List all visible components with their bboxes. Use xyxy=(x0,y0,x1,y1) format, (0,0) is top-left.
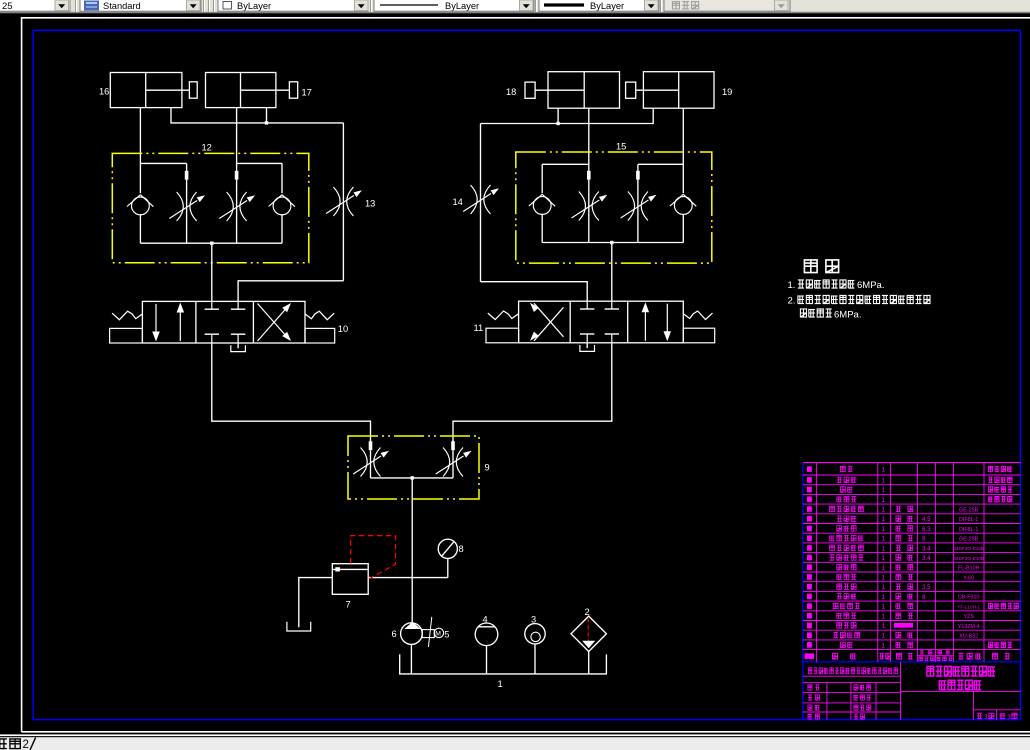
svg-text:M: M xyxy=(435,631,441,638)
svg-text:1: 1 xyxy=(882,555,886,562)
svg-text:1.: 1. xyxy=(788,280,796,291)
svg-text:1: 1 xyxy=(498,679,503,689)
svg-text:1: 1 xyxy=(882,565,886,572)
svg-text:1: 1 xyxy=(882,507,886,514)
svg-text:1: 1 xyxy=(882,467,886,474)
svg-text:1: 1 xyxy=(882,604,886,611)
svg-text:1: 1 xyxy=(882,584,886,591)
svg-text:1: 1 xyxy=(882,613,886,620)
svg-text:13: 13 xyxy=(365,199,375,209)
svg-text:1: 1 xyxy=(882,633,886,640)
svg-text:FL-B10H: FL-B10H xyxy=(958,566,980,572)
svg-text:3: 3 xyxy=(531,615,536,625)
svg-text:1: 1 xyxy=(882,594,886,601)
svg-text:16: 16 xyxy=(99,87,109,97)
svg-text:9: 9 xyxy=(485,463,490,473)
svg-text:34DF3O-E10B: 34DF3O-E10B xyxy=(953,546,984,551)
svg-text:2: 2 xyxy=(585,607,590,617)
svg-text:GE-25B: GE-25B xyxy=(959,507,979,513)
svg-text:ByLayer: ByLayer xyxy=(237,1,271,11)
svg-text:XU-B32: XU-B32 xyxy=(959,634,978,640)
svg-text:11: 11 xyxy=(474,323,484,333)
svg-text:1: 1 xyxy=(882,623,886,630)
svg-text:2: 2 xyxy=(23,739,29,750)
svg-text:3.4: 3.4 xyxy=(922,555,931,562)
svg-text:6.3: 6.3 xyxy=(922,526,931,533)
svg-text:Standard: Standard xyxy=(103,1,141,11)
svg-text:14: 14 xyxy=(453,197,463,207)
svg-text:5: 5 xyxy=(444,630,449,640)
svg-text:1: 1 xyxy=(882,536,886,543)
svg-text:ByLayer: ByLayer xyxy=(590,1,624,11)
svg-text:1: 1 xyxy=(882,516,886,523)
svg-text:Y-60: Y-60 xyxy=(963,575,974,581)
svg-text:17: 17 xyxy=(302,88,312,98)
svg-text:3: 3 xyxy=(984,714,988,721)
svg-text:12: 12 xyxy=(202,143,212,153)
svg-text:1: 1 xyxy=(882,575,886,582)
svg-text:ByLayer: ByLayer xyxy=(445,1,479,11)
svg-text:7: 7 xyxy=(346,600,351,610)
svg-text:1: 1 xyxy=(882,526,886,533)
svg-text:3: 3 xyxy=(1007,714,1011,721)
svg-text:4: 4 xyxy=(483,615,488,625)
svg-text:6: 6 xyxy=(392,629,397,639)
svg-text:4.5: 4.5 xyxy=(922,516,931,523)
svg-text:6MPa.: 6MPa. xyxy=(857,280,884,291)
svg-text:15: 15 xyxy=(616,142,626,152)
svg-text:1: 1 xyxy=(882,497,886,504)
svg-text:DIF8L-1: DIF8L-1 xyxy=(959,527,978,533)
svg-text:CB-F310: CB-F310 xyxy=(958,595,980,601)
svg-text:2.: 2. xyxy=(788,296,796,307)
svg-text:10: 10 xyxy=(338,324,348,334)
svg-text:8: 8 xyxy=(922,594,926,601)
svg-text:34DF3O-E10B: 34DF3O-E10B xyxy=(953,556,984,561)
svg-text:25: 25 xyxy=(2,1,13,12)
svg-text:3.5: 3.5 xyxy=(922,584,931,591)
svg-text:1: 1 xyxy=(882,642,886,649)
svg-text:1: 1 xyxy=(882,545,886,552)
svg-text:1: 1 xyxy=(882,478,886,485)
svg-text:1: 1 xyxy=(882,487,886,494)
svg-text:18: 18 xyxy=(506,87,516,97)
svg-text:3.4: 3.4 xyxy=(922,545,931,552)
svg-text:YF-L10H-1: YF-L10H-1 xyxy=(957,604,980,609)
svg-text:8: 8 xyxy=(459,544,464,554)
svg-text:6MPa.: 6MPa. xyxy=(834,310,861,321)
svg-text:19: 19 xyxy=(722,87,732,97)
svg-text:GE-25B: GE-25B xyxy=(959,537,979,543)
svg-text:Y132M-4: Y132M-4 xyxy=(958,624,980,630)
svg-text:DIF8L-1: DIF8L-1 xyxy=(959,517,978,523)
svg-text:8: 8 xyxy=(922,536,926,543)
svg-text:YZS: YZS xyxy=(963,614,974,620)
